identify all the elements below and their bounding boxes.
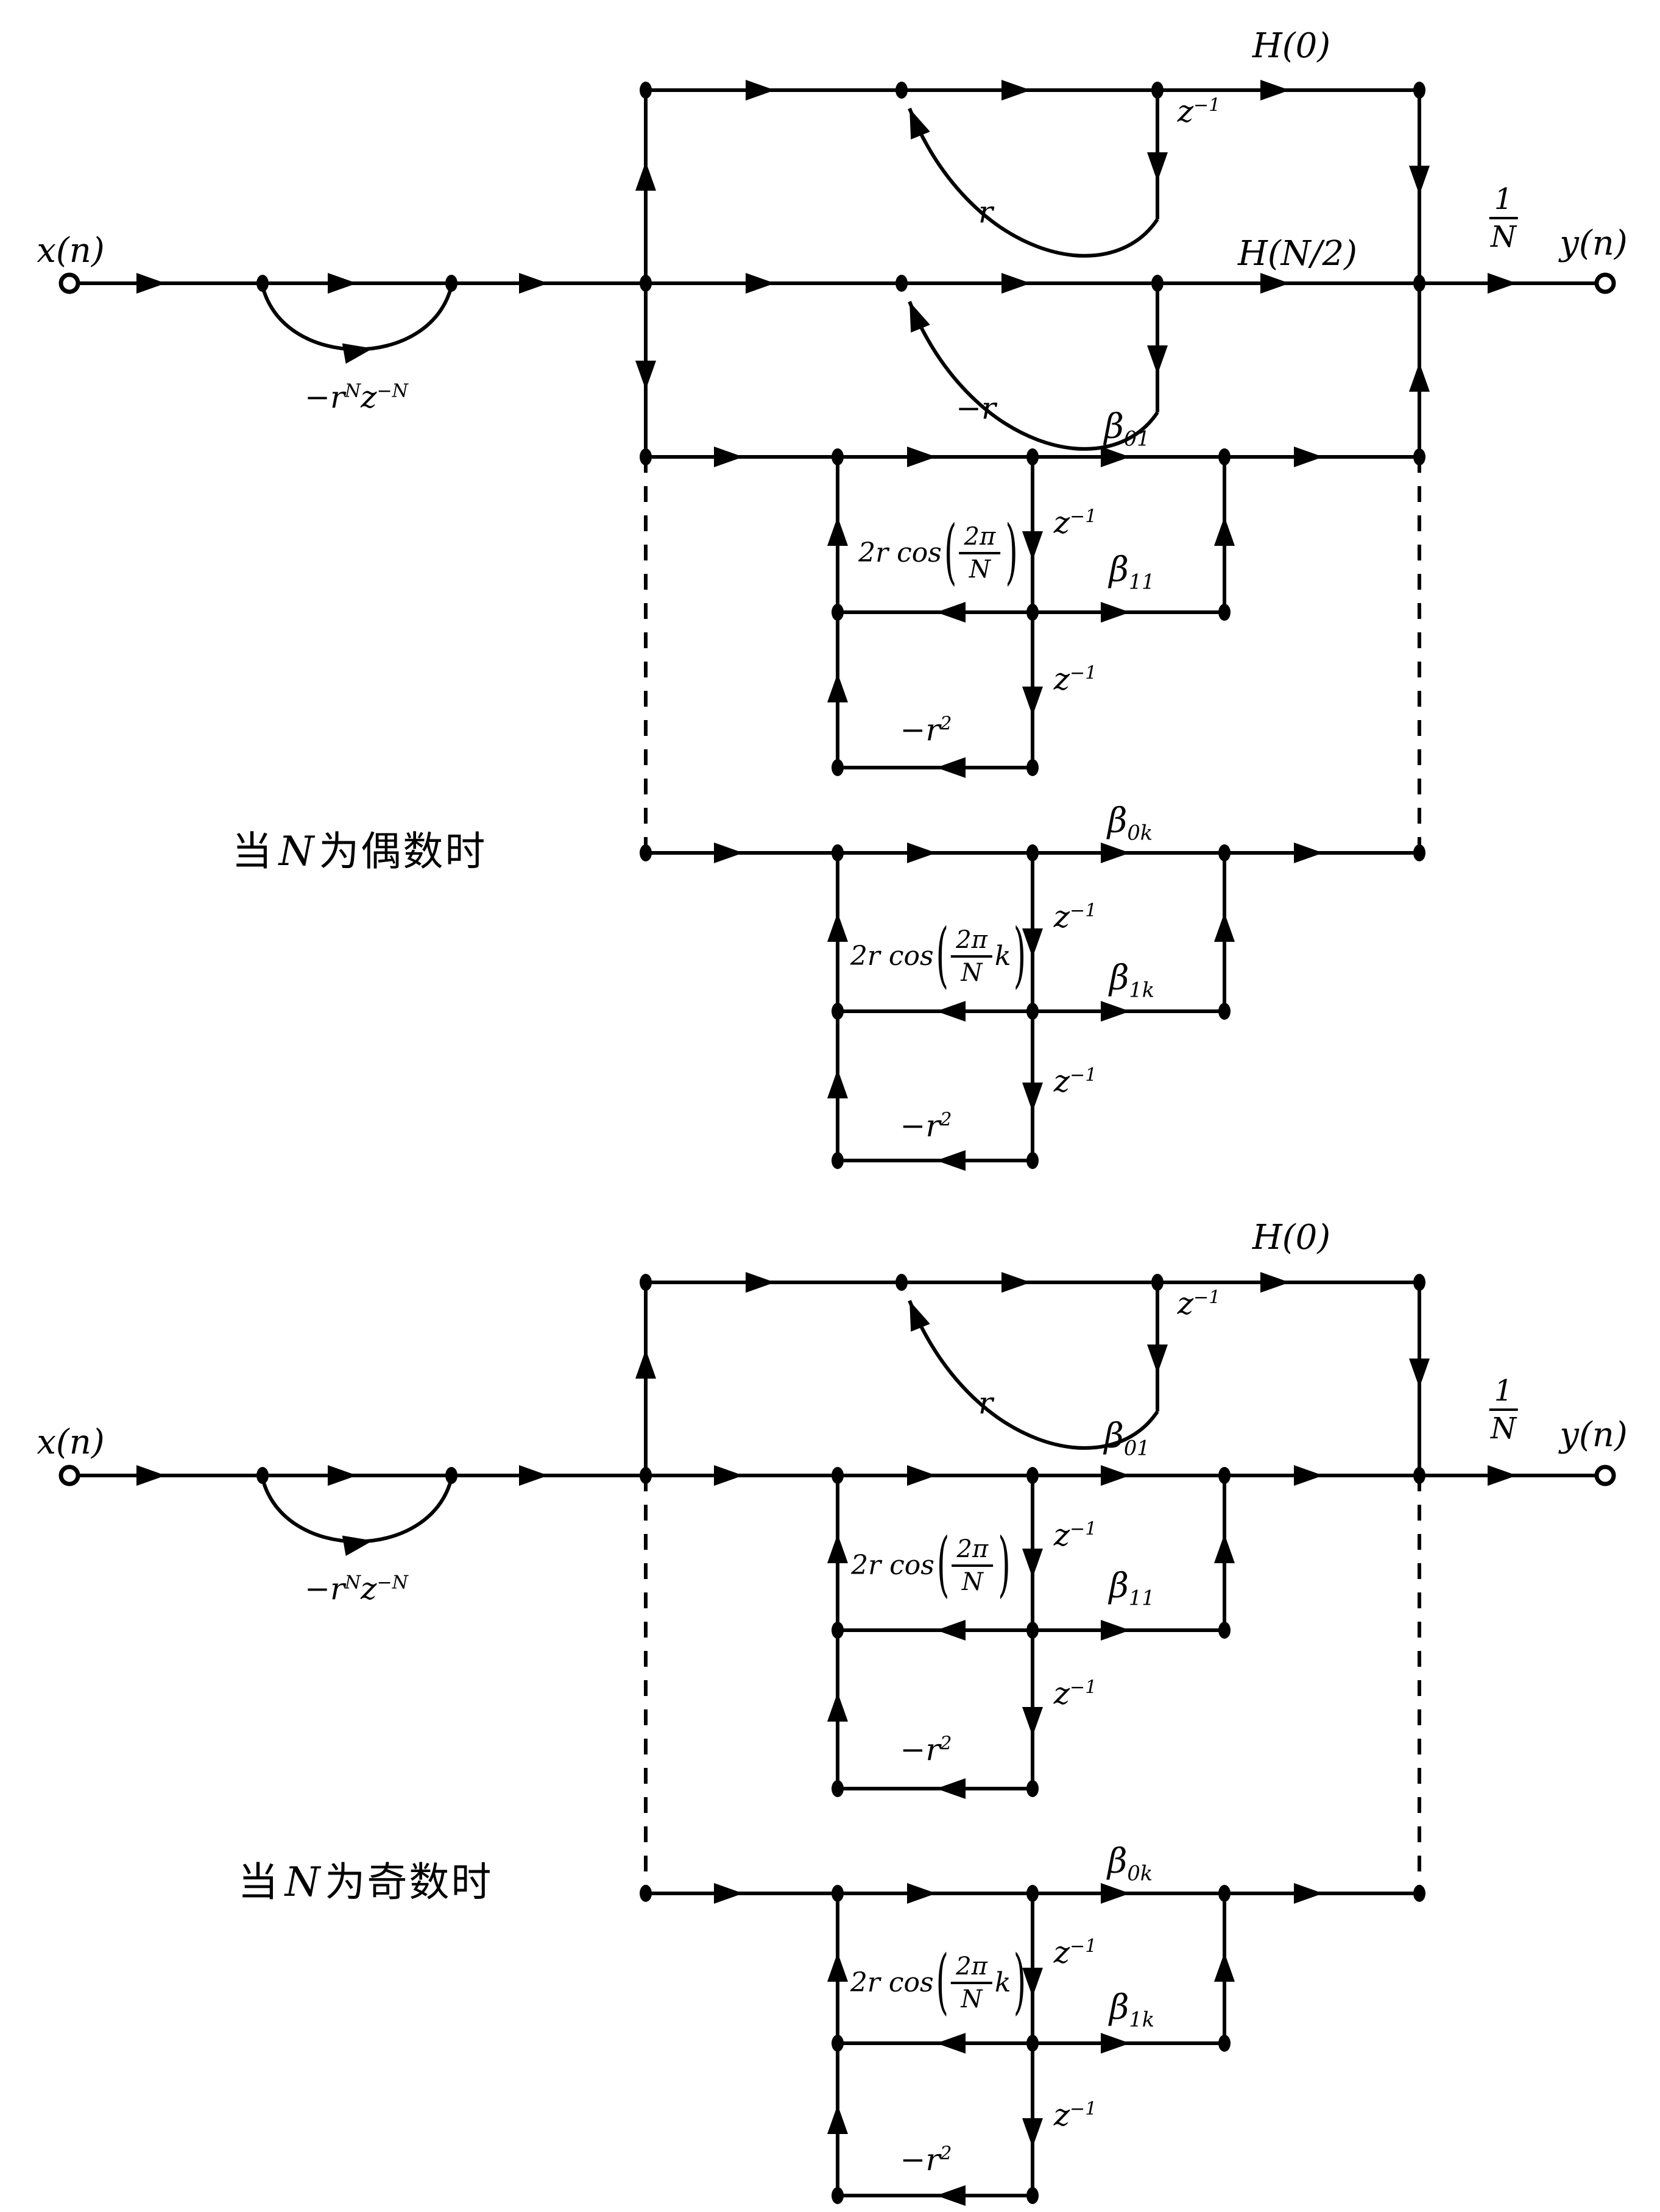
neg-r-gain-hn2-even: −r [956, 393, 996, 423]
beta1k-label-odd: β1k [1109, 1991, 1154, 2030]
resonatork-gain-odd: 2r cos(2πNk) [850, 1954, 1028, 2012]
beta01-label-even: β01 [1104, 410, 1150, 449]
resonator1-gain-even: 2r cos(2πN) [858, 525, 1020, 582]
one-over-n-odd: 1N [1489, 1376, 1518, 1443]
h0-label-even: H(0) [1252, 29, 1330, 63]
comb-gain-label-even: −rNz−N [305, 382, 408, 412]
input-terminal-odd [61, 1467, 78, 1484]
resonator1-gain-odd: 2r cos(2πN) [851, 1537, 1013, 1594]
even-diagram-edges [78, 90, 1597, 1161]
caption-odd: 当N为奇数时 [238, 1862, 493, 1903]
caption-even: 当N为偶数时 [232, 832, 487, 872]
input-label-odd: x(n) [37, 1426, 104, 1460]
z-inverse-kb-even: z−1 [1054, 1066, 1097, 1097]
r-gain-h0-even: r [978, 197, 993, 227]
odd-diagram-arrows [136, 1272, 1517, 2206]
z-inverse-h0-even: z−1 [1178, 96, 1221, 127]
output-terminal-odd [1597, 1467, 1614, 1484]
output-label-odd: y(n) [1559, 1418, 1627, 1452]
input-label-even: x(n) [37, 234, 104, 268]
beta11-label-odd: β11 [1109, 1569, 1154, 1608]
beta01-label-odd: β01 [1104, 1419, 1150, 1458]
z-inverse-s1b-odd: z−1 [1054, 1678, 1097, 1709]
z-inverse-s1a-odd: z−1 [1054, 1520, 1097, 1550]
z-inverse-ka-odd: z−1 [1054, 1937, 1097, 1968]
figure-canvas: x(n) −rNz−N H(0) z−1 r H(N/2) 1N y(n) −r… [0, 0, 1660, 2212]
z-inverse-s1b-even: z−1 [1054, 664, 1097, 694]
neg-r2-k-odd: −r2 [900, 2144, 952, 2175]
beta11-label-even: β11 [1109, 553, 1154, 592]
z-inverse-kb-odd: z−1 [1054, 2100, 1097, 2130]
beta0k-label-even: β0k [1107, 804, 1153, 843]
beta1k-label-even: β1k [1109, 961, 1154, 1000]
r-gain-h0-odd: r [978, 1388, 993, 1418]
one-over-n-even: 1N [1489, 185, 1518, 252]
z-inverse-ka-even: z−1 [1054, 902, 1097, 932]
neg-r2-k-even: −r2 [900, 1111, 952, 1141]
neg-r2-s1-odd: −r2 [900, 1734, 952, 1765]
h0-label-odd: H(0) [1252, 1221, 1330, 1255]
neg-r2-s1-even: −r2 [900, 715, 952, 745]
output-terminal-even [1597, 275, 1614, 292]
z-inverse-h0-odd: z−1 [1178, 1288, 1221, 1319]
odd-diagram-edges [78, 1282, 1597, 2196]
resonatork-gain-even: 2r cos(2πNk) [850, 928, 1028, 985]
input-terminal-even [61, 275, 78, 292]
hn2-label-even: H(N/2) [1238, 237, 1357, 271]
beta0k-label-odd: β0k [1107, 1845, 1153, 1884]
comb-gain-label-odd: −rNz−N [305, 1574, 408, 1604]
output-label-even: y(n) [1559, 227, 1627, 261]
z-inverse-s1a-even: z−1 [1054, 507, 1097, 538]
